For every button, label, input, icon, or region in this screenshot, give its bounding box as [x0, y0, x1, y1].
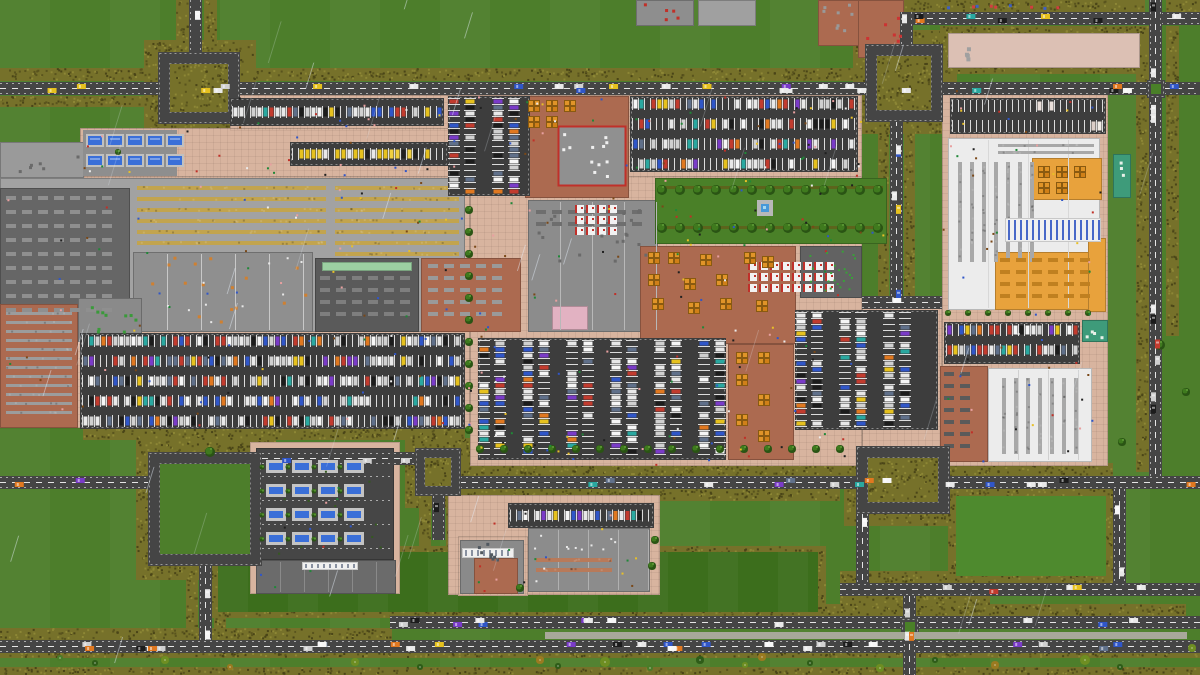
game-viewport: [0, 0, 1200, 675]
game-world-map[interactable]: [0, 0, 1200, 675]
